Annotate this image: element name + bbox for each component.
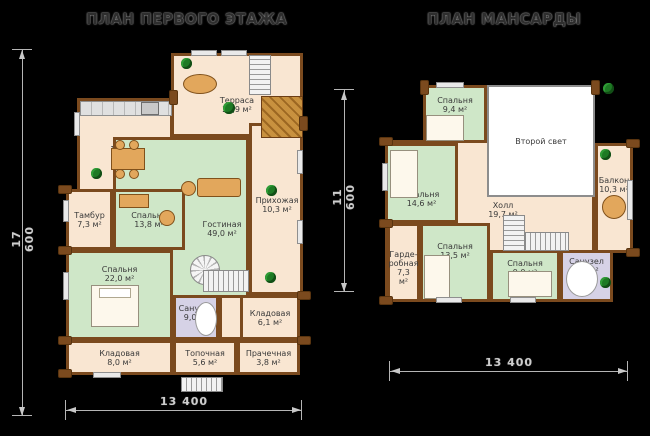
log-end (379, 137, 393, 146)
log-end (379, 296, 393, 305)
dimension-label: 13 400 (472, 356, 546, 369)
first-floor-title: ПЛАН ПЕРВОГО ЭТАЖА (86, 10, 287, 28)
window (627, 180, 633, 220)
room-label: Гостиная 49,0 м² (198, 220, 246, 238)
plant-icon (91, 168, 102, 179)
porch-steps-icon (181, 377, 223, 392)
window (510, 297, 536, 303)
log-end (58, 336, 72, 345)
floorplan-canvas: ПЛАН ПЕРВОГО ЭТАЖА ПЛАН МАНСАРДЫ Терраса… (0, 0, 650, 436)
plant-icon (600, 277, 611, 288)
room-label: Балкон 10,3 м² (598, 176, 630, 194)
plant-icon (181, 58, 192, 69)
room-hallway: Прихожая 10,3 м² (249, 123, 303, 295)
stairs-icon (203, 270, 249, 292)
log-end (420, 80, 429, 95)
plant-icon (265, 272, 276, 283)
log-end (299, 116, 308, 131)
window (63, 272, 69, 300)
window (297, 220, 303, 244)
bed-icon (508, 271, 552, 297)
bathtub-icon (195, 302, 217, 336)
window (382, 163, 388, 191)
window (436, 297, 462, 303)
coffee-table-icon (181, 181, 196, 196)
window (297, 150, 303, 174)
log-end (379, 219, 393, 228)
dimension-label: 17 600 (10, 217, 36, 261)
window (63, 200, 69, 222)
stairs-icon (503, 215, 525, 251)
dining-table-icon (111, 148, 145, 170)
log-end (58, 246, 72, 255)
room-label: Второй свет (515, 137, 566, 146)
attic-title: ПЛАН МАНСАРДЫ (427, 10, 581, 28)
log-end (297, 336, 311, 345)
room-wardrobe: Гарде-робная 7,3 м² (387, 223, 420, 302)
bed-icon (424, 255, 450, 299)
dimension-tick (65, 400, 66, 420)
terrace-table-icon (183, 74, 217, 94)
chair-icon (115, 140, 125, 150)
room-label: Топочная 5,6 м² (185, 349, 225, 367)
room-label: Гарде-робная 7,3 м² (392, 250, 415, 286)
chair-icon (129, 140, 139, 150)
dimension-arrow (341, 283, 347, 292)
stove-icon (141, 102, 159, 115)
plant-icon (223, 102, 235, 114)
round-table-icon (159, 210, 175, 226)
stairs-icon (525, 232, 569, 251)
room-label: Спальня 9,4 м² (426, 96, 484, 114)
window (436, 82, 464, 88)
room-second-light: Второй свет (487, 85, 595, 197)
log-end (626, 139, 640, 148)
log-end (58, 185, 72, 194)
log-end (626, 248, 640, 257)
window (74, 112, 80, 136)
dimension-arrow (292, 407, 301, 413)
log-end (297, 291, 311, 300)
dimension-tick (301, 400, 302, 420)
desk-icon (119, 194, 149, 208)
dimension-label: 11 600 (331, 175, 357, 219)
chair-icon (115, 169, 125, 179)
plant-icon (603, 83, 614, 94)
room-laundry: Прачечная 3,8 м² (237, 340, 300, 375)
bed-icon (390, 150, 418, 198)
dimension-arrow (618, 368, 627, 374)
room-boiler: Топочная 5,6 м² (173, 340, 237, 375)
dimension-arrow (19, 50, 25, 59)
dimension-tick (334, 89, 354, 90)
plant-icon (266, 185, 277, 196)
room-label: Тамбур 7,3 м² (74, 211, 105, 229)
dimension-arrow (391, 368, 400, 374)
balcony-table-icon (602, 195, 626, 219)
dimension-arrow (67, 407, 76, 413)
dimension-arrow (341, 91, 347, 100)
room-label: Прихожая 10,3 м² (254, 196, 300, 214)
wood-deck-icon (261, 96, 303, 138)
dimension-label: 13 400 (148, 395, 220, 408)
dimension-tick (627, 361, 628, 381)
plant-icon (600, 149, 611, 160)
log-end (591, 80, 600, 95)
dimension-arrow (19, 407, 25, 416)
chair-icon (129, 169, 139, 179)
pillow-icon (99, 288, 131, 298)
room-storage-80: Кладовая 8,0 м² (66, 340, 173, 375)
room-label: Спальня 22,0 м² (69, 265, 170, 283)
bed-icon (426, 115, 464, 141)
window (221, 50, 247, 56)
bathtub-icon (566, 261, 598, 297)
attic-plan: Холл 19,7 м² Второй свет Спальня 9,4 м² … (378, 55, 640, 305)
dimension-line (390, 371, 628, 372)
room-label: Кладовая 8,0 м² (99, 349, 140, 367)
dimension-line (66, 410, 302, 411)
room-label: Прачечная 3,8 м² (246, 349, 291, 367)
room-tambour: Тамбур 7,3 м² (66, 189, 113, 250)
first-floor-plan: Терраса 29,9 м² Кухня 17,7 м² Прихожая 1… (63, 50, 311, 395)
exterior-stairs-icon (249, 55, 271, 95)
sofa-icon (197, 178, 241, 197)
room-label: Кладовая 6,1 м² (250, 309, 291, 327)
log-end (58, 369, 72, 378)
room-storage-61: Кладовая 6,1 м² (240, 295, 300, 340)
window (93, 372, 121, 378)
log-end (169, 90, 178, 105)
dimension-tick (389, 361, 390, 381)
window (191, 50, 217, 56)
